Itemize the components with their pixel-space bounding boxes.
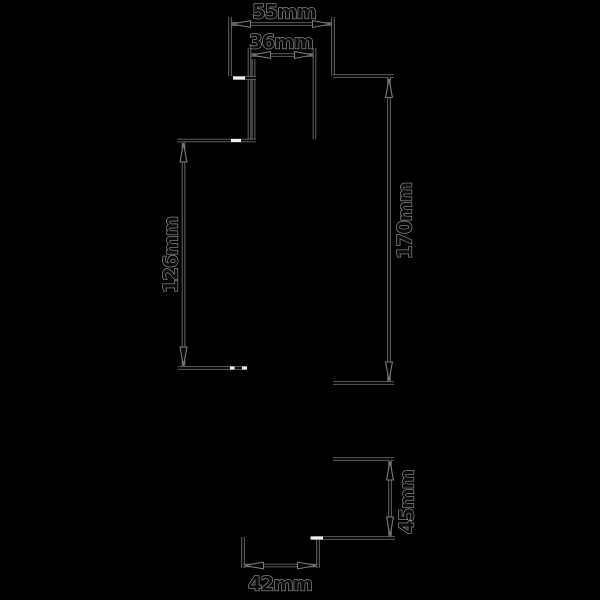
dim-label-45mm: 45mm bbox=[396, 470, 419, 534]
dimension-drawing: 55mm36mm170mm126mm45mm42mm bbox=[0, 0, 600, 600]
dim-label-36mm: 36mm bbox=[249, 31, 313, 54]
dimension-drawing-stage: 55mm36mm170mm126mm45mm42mm bbox=[0, 0, 600, 600]
dim-label-55mm: 55mm bbox=[252, 1, 316, 24]
dim-label-170mm: 170mm bbox=[394, 183, 417, 259]
dim-label-126mm: 126mm bbox=[160, 217, 183, 293]
dim-label-42mm: 42mm bbox=[248, 573, 312, 596]
drawing-background bbox=[0, 0, 600, 600]
